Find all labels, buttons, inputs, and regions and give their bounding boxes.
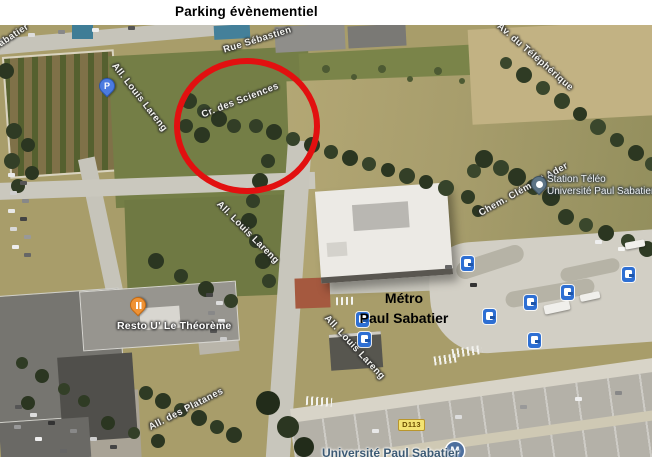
crosswalk (336, 297, 354, 306)
bus-stop-icon[interactable] (483, 309, 496, 324)
bus-glyph (361, 335, 368, 343)
street-label: All. des Platanes (147, 386, 225, 433)
teleo-line2: Université Paul Sabatier (547, 186, 652, 198)
bus-stop-icon[interactable] (524, 295, 537, 310)
terrain-garden-plot (2, 49, 122, 179)
bus-stop-icon[interactable] (528, 333, 541, 348)
teleo-line1: Station Téléo (547, 174, 652, 186)
crosswalk (433, 354, 456, 366)
cablecar-dot-icon (536, 181, 543, 188)
bus-glyph (531, 336, 538, 344)
bus-glyph (464, 259, 471, 267)
roof-unit (327, 242, 348, 257)
bus-stop-icon[interactable] (358, 332, 371, 347)
building (0, 417, 91, 457)
bus-glyph (564, 288, 571, 296)
building (347, 25, 406, 49)
bus-stop-icon[interactable] (622, 267, 635, 282)
metro-annotation: Métro Paul Sabatier (360, 288, 449, 328)
metro-station-label[interactable]: Université Paul Sabatier (322, 446, 459, 457)
satellite-map[interactable]: Paul SabatierAll. Louis LarengRue Sébast… (0, 25, 652, 457)
crosswalk (452, 345, 483, 358)
car-clusters (0, 25, 7, 29)
bus-glyph (486, 312, 493, 320)
bus-stop-icon[interactable] (561, 285, 574, 300)
bus-stop-icon[interactable] (461, 256, 474, 271)
utensils-icon (136, 302, 138, 309)
highlight-circle-annotation (174, 58, 320, 194)
page-title: Parking évènementiel (175, 4, 318, 19)
roof-unit (352, 201, 410, 231)
bus-glyph (527, 298, 534, 306)
crosswalk (306, 396, 333, 407)
building-white-roof (315, 183, 453, 284)
metro-annotation-line1: Métro (360, 288, 449, 308)
route-badge-d113: D113 (398, 419, 425, 431)
parking-pin-letter: P (100, 79, 114, 93)
teleo-station-label[interactable]: Station Téléo Université Paul Sabatier (547, 174, 652, 198)
document-page: Parking évènementiel (0, 0, 652, 457)
bus-glyph (625, 270, 632, 278)
resto-u-label[interactable]: Resto U' Le Théorème (117, 320, 231, 332)
pool (72, 25, 93, 39)
metro-annotation-line2: Paul Sabatier (360, 308, 449, 328)
